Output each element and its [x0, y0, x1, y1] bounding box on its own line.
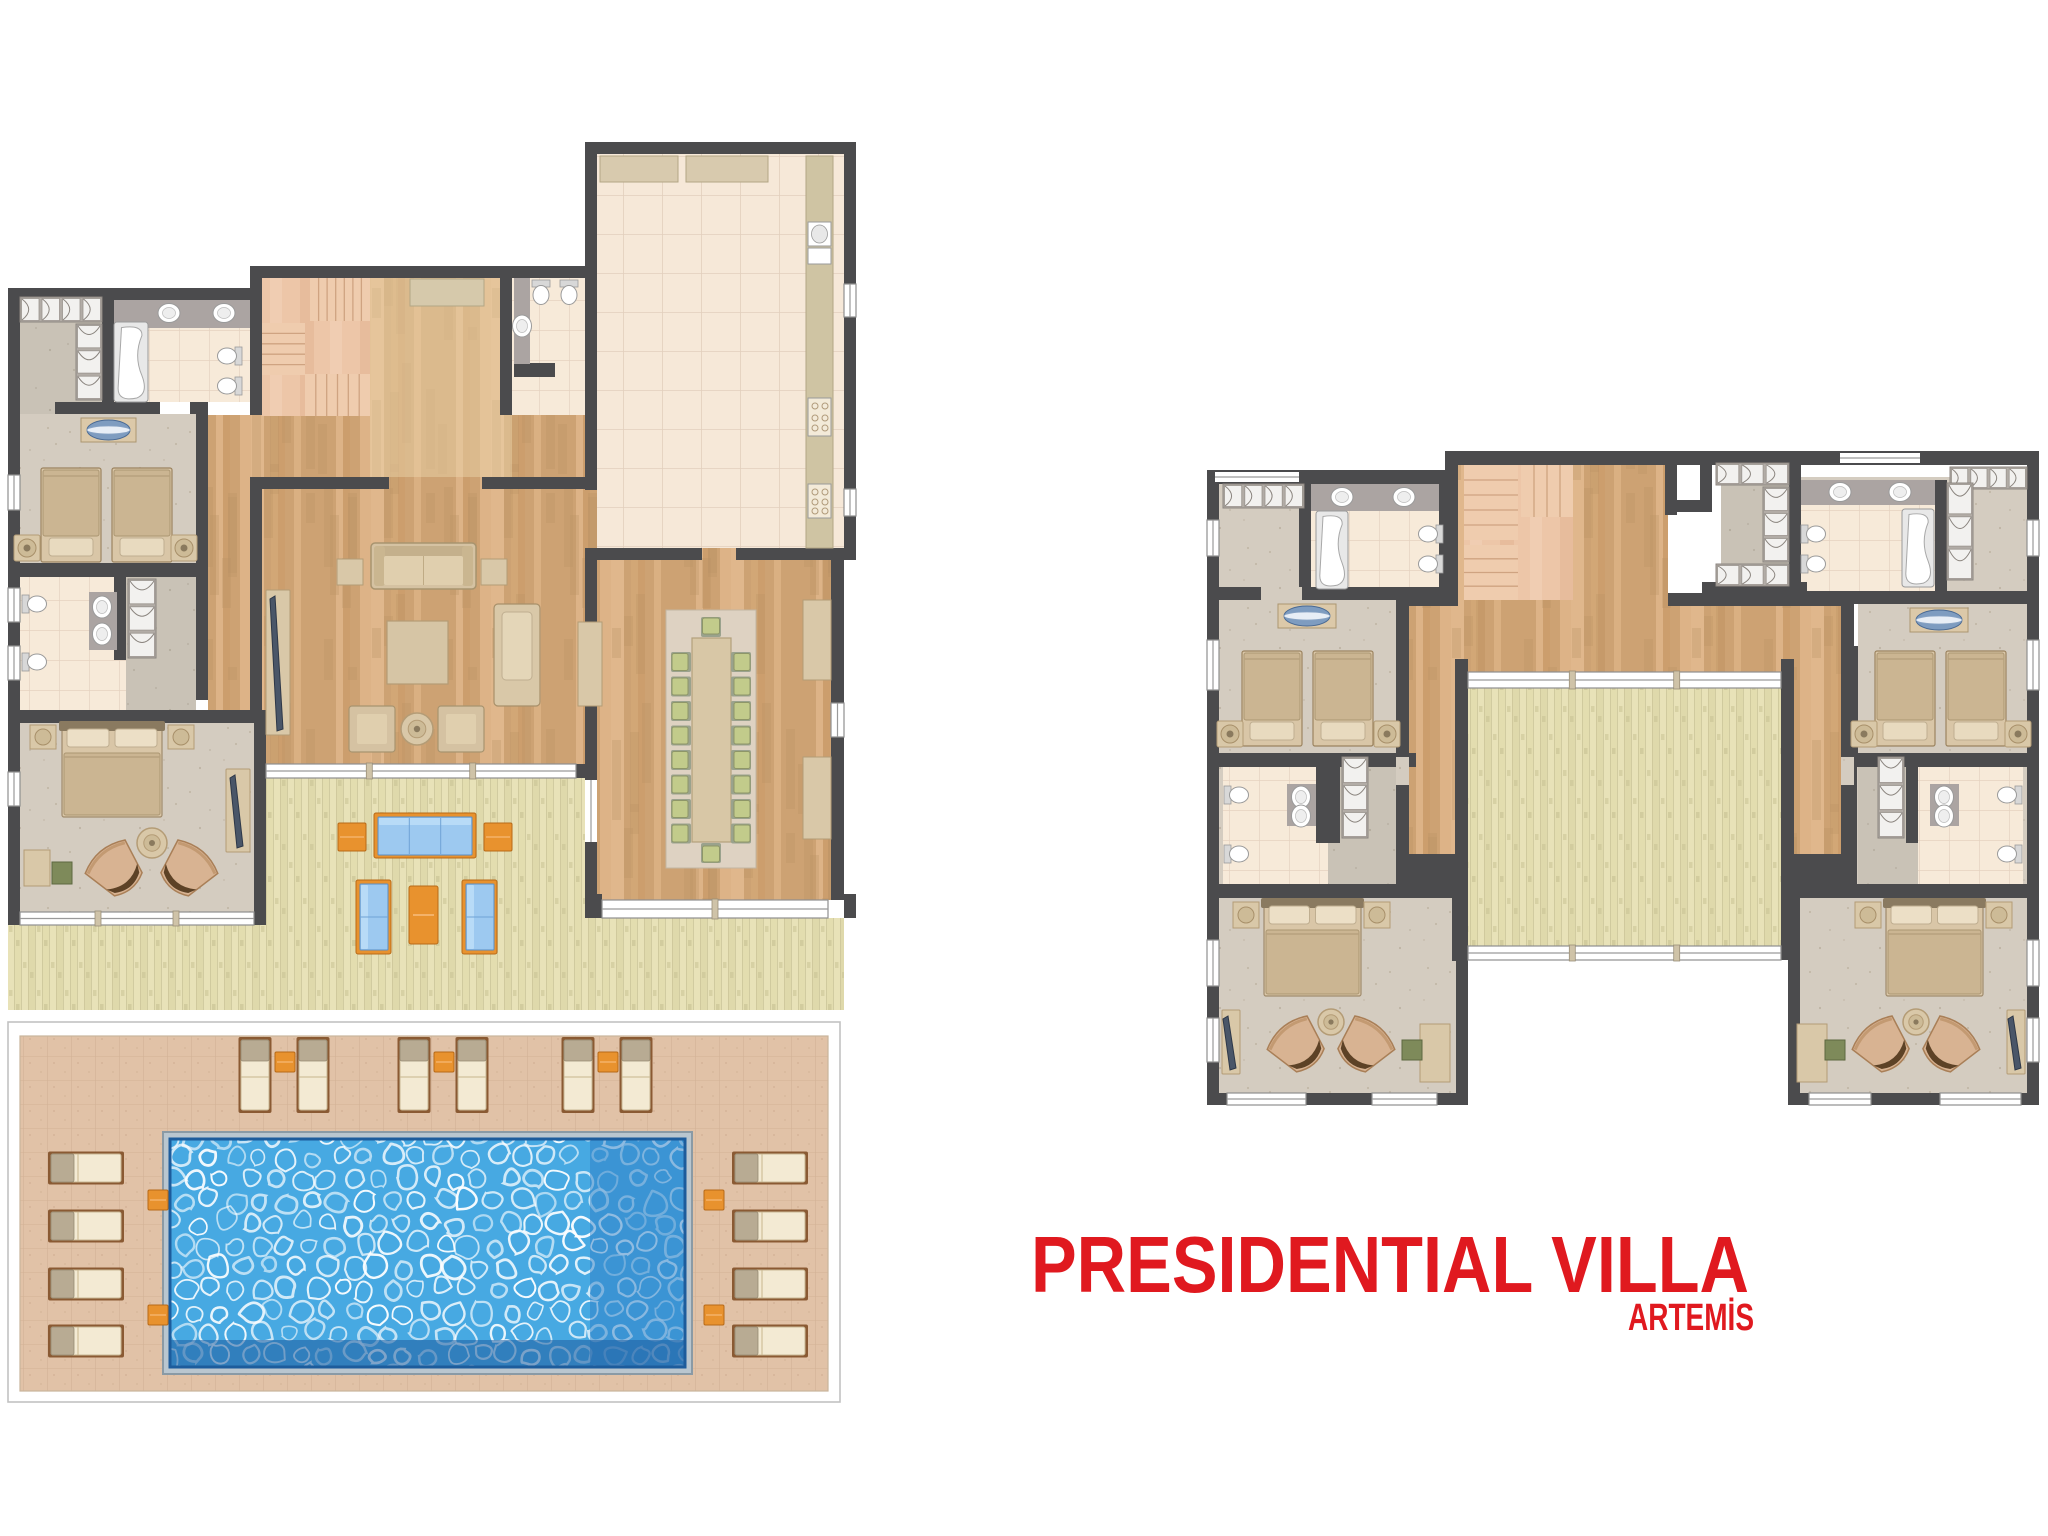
svg-text:ARTEMİS: ARTEMİS	[1628, 1297, 1754, 1339]
svg-text:PRESIDENTIAL VILLA: PRESIDENTIAL VILLA	[1031, 1220, 1749, 1309]
